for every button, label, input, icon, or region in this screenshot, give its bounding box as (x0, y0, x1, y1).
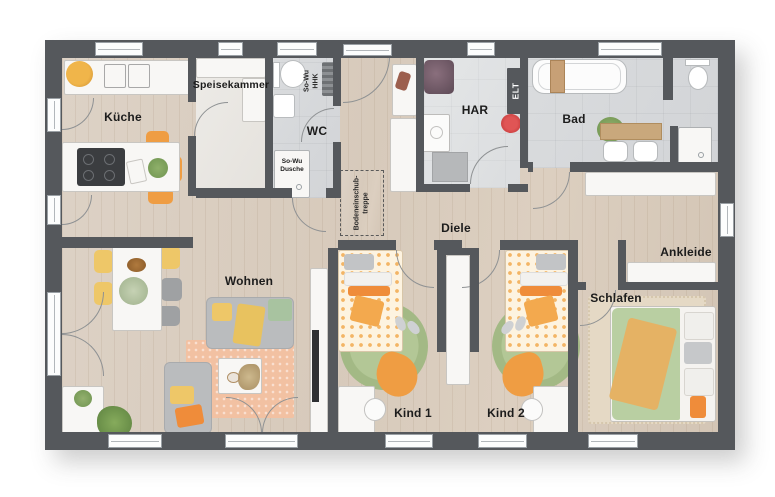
cooktop-burner (104, 154, 115, 165)
dining-chair-yellow (94, 250, 113, 273)
label-so-wu-dusche-line1: So-Wu (280, 158, 303, 166)
cooktop-burner (104, 170, 115, 181)
laundry-basket (424, 60, 454, 94)
label-elt: ELT (511, 83, 522, 100)
room-label-har: HAR (462, 103, 489, 117)
floor-plan: Küche Speisekammer WC HAR Bad Diele Wohn… (0, 0, 775, 497)
dining-chair-yellow (159, 246, 180, 269)
bed-pillow-gray (684, 342, 712, 364)
window-schlafen-bottom (588, 434, 638, 448)
wall-kueche-wohnen (62, 237, 193, 248)
room-label-speisekammer: Speisekammer (193, 79, 270, 91)
wall-ankleide-bottom (618, 282, 718, 290)
front-door (343, 44, 392, 56)
sofa-blanket-yellow (232, 303, 265, 347)
bad-toilet-tank (685, 59, 710, 66)
window-wc-top (277, 42, 317, 56)
chaise-pillow-yellow (170, 386, 194, 404)
wall-bad-bottom-left (528, 162, 533, 172)
label-bodeneinschubtreppe: Bodeneinschub- treppe (353, 176, 371, 231)
wardrobe-top (585, 172, 716, 196)
bed-kind2-band-orange (520, 286, 562, 296)
bed-kind1-band-orange (348, 286, 390, 296)
vanity-counter (600, 123, 662, 140)
wall-kids-top-3 (500, 240, 568, 250)
label-so-wu-dusche: So-Wu Dusche (280, 158, 303, 174)
bad-sink (603, 141, 628, 162)
cooktop (77, 148, 125, 186)
window-wohnen-bottom (108, 434, 162, 448)
vacuum-robot (501, 114, 521, 133)
room-label-bad: Bad (562, 112, 585, 126)
bath-caddy (550, 60, 565, 93)
pantry-shelf-top (196, 58, 266, 78)
wall-schlafen-top (578, 282, 586, 290)
bed-kind1-pillow-2 (344, 272, 392, 286)
bad-sink-2 (633, 141, 658, 162)
wall-har-bad (520, 58, 528, 168)
window-kind1-bottom (385, 434, 433, 448)
room-label-wohnen: Wohnen (225, 274, 273, 288)
wall-bad-bottom (570, 162, 718, 172)
room-label-ankleide: Ankleide (660, 245, 712, 259)
shower-drain (296, 184, 302, 190)
label-bodeneinschubtreppe-line1: Bodeneinschub- (353, 176, 362, 231)
wc-toilet-tank (273, 62, 280, 88)
bed-pillow-2 (684, 368, 714, 396)
bed-pillow (684, 312, 714, 340)
room-label-kueche: Küche (104, 110, 142, 124)
label-so-wu-hhk-line1: So-Wu (303, 70, 312, 92)
bad-shower (678, 127, 712, 166)
wall-kids-top-1 (338, 240, 396, 250)
bed-kind2-pillow (536, 254, 566, 270)
bad-toilet (688, 66, 708, 90)
tv (312, 330, 319, 402)
wall-wohnen-kind1 (328, 248, 338, 432)
room-label-wc: WC (307, 124, 327, 138)
washing-machine-door (430, 126, 443, 139)
outer-wall-right (718, 40, 735, 450)
wc-toilet (280, 60, 306, 88)
bed-kind1-pillow (344, 254, 374, 270)
sofa-pillow-sage (268, 299, 292, 321)
window-kind2-bottom (478, 434, 527, 448)
wall-har-bottom-2 (508, 184, 528, 192)
shelf-plant (74, 390, 92, 407)
window-kueche-top (95, 42, 143, 56)
bed-kind2-pillow-2 (520, 272, 568, 286)
wall-kueche-speisekammer-2 (188, 136, 196, 196)
wc-sink (273, 94, 295, 118)
wall-below-wc (326, 188, 341, 198)
label-so-wu-hhk-line2: HHK (312, 70, 321, 92)
window-har-top (467, 42, 495, 56)
wall-kind1-kind2-cap (437, 248, 479, 255)
wall-wc-entry-upper (333, 58, 341, 106)
window-bad-top (598, 42, 662, 56)
room-label-diele: Diele (441, 221, 471, 235)
label-so-wu-hhk: So-Wu HHK (303, 70, 321, 92)
table-bowl (127, 258, 146, 272)
bed-accent-orange (690, 396, 706, 418)
wall-kind1-kind2-right (470, 248, 479, 352)
coffee-table-bowl (227, 372, 240, 383)
room-label-kind1: Kind 1 (394, 406, 432, 420)
wall-bad-stub-toilet (663, 48, 673, 100)
label-bodeneinschubtreppe-line2: treppe (362, 176, 371, 231)
cooktop-burner (83, 170, 94, 181)
sofa-pillow-yellow (212, 303, 232, 321)
kitchen-sink-2 (128, 64, 150, 88)
window-kueche-left-1 (47, 98, 61, 132)
bad-shower-drain (698, 152, 704, 158)
window-wohnen-left (47, 292, 61, 376)
window-ankleide-right (720, 203, 734, 237)
wall-har-bottom (424, 184, 470, 192)
wall-kind1-kind2-left (437, 248, 446, 352)
fruit-bowl (66, 61, 93, 87)
wall-bad-stub-shower (670, 126, 678, 166)
wall-entry-har (416, 58, 424, 192)
table-flowers (119, 277, 148, 305)
room-label-kind2: Kind 2 (487, 406, 525, 420)
wall-below-speisekammer (196, 188, 292, 198)
room-label-schlafen: Schlafen (590, 291, 642, 305)
cooktop-burner (83, 154, 94, 165)
har-storage-box (432, 152, 468, 182)
window-kueche-left-2 (47, 195, 61, 225)
wall-ankleide-left (618, 240, 626, 288)
wall-kind2-schlafen (568, 240, 578, 432)
kitchen-sink (104, 64, 126, 88)
window-speisekammer-top (218, 42, 243, 56)
island-plant (148, 158, 168, 178)
coffee-table-plant (238, 364, 260, 390)
dining-chair-gray (161, 278, 182, 301)
entry-wardrobe (390, 118, 417, 192)
wardrobe-bottom (627, 262, 716, 283)
terrace-door (225, 434, 298, 448)
label-so-wu-dusche-line2: Dusche (280, 166, 303, 174)
